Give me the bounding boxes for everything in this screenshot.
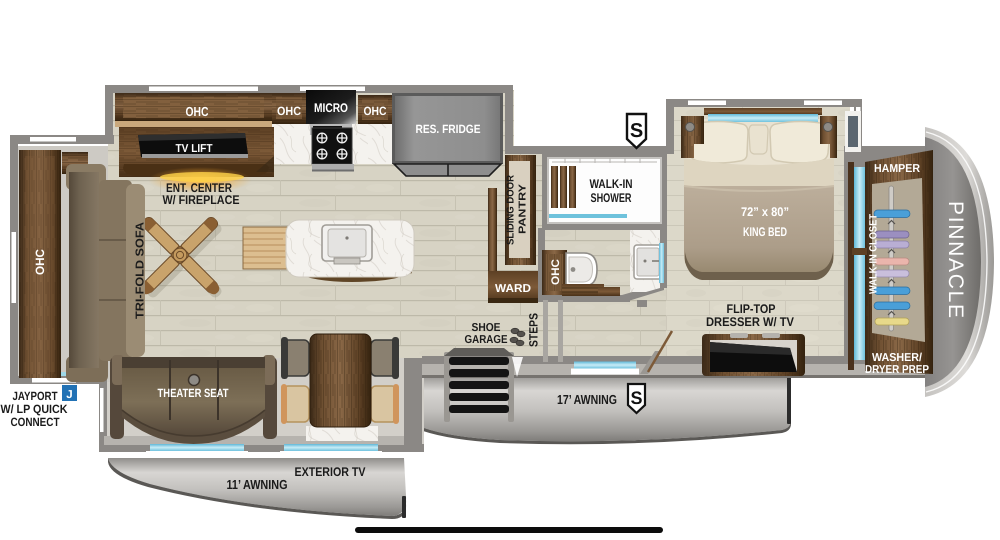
svg-text:RES. FRIDGE: RES. FRIDGE: [416, 122, 481, 136]
svg-text:TRI-FOLD SOFA: TRI-FOLD SOFA: [135, 222, 147, 319]
svg-text:HAMPER: HAMPER: [874, 163, 921, 175]
svg-text:WALK-IN CLOSET: WALK-IN CLOSET: [868, 213, 880, 294]
svg-text:EXTERIOR TV: EXTERIOR TV: [295, 465, 367, 479]
svg-text:KING BED: KING BED: [743, 225, 787, 239]
svg-text:PINNACLE: PINNACLE: [944, 201, 967, 318]
svg-text:OHC: OHC: [186, 104, 209, 119]
svg-text:72” x 80”: 72” x 80”: [741, 205, 789, 219]
svg-text:FLIP-TOP: FLIP-TOP: [727, 302, 776, 316]
svg-text:OHC: OHC: [364, 104, 387, 118]
svg-text:DRESSER W/ TV: DRESSER W/ TV: [706, 315, 795, 329]
svg-text:PANTRY: PANTRY: [518, 184, 529, 234]
svg-text:WALK-IN: WALK-IN: [590, 177, 633, 191]
svg-text:WARD: WARD: [495, 283, 531, 295]
svg-text:WASHER/: WASHER/: [872, 352, 923, 364]
svg-text:DRYER PREP: DRYER PREP: [865, 364, 929, 376]
svg-text:J: J: [66, 389, 72, 401]
svg-text:17’ AWNING: 17’ AWNING: [557, 392, 617, 407]
svg-text:THEATER SEAT: THEATER SEAT: [158, 386, 230, 400]
svg-text:OHC: OHC: [33, 249, 47, 275]
svg-text:SHOE: SHOE: [472, 322, 501, 334]
svg-text:SHOWER: SHOWER: [591, 191, 632, 205]
svg-text:MICRO: MICRO: [314, 101, 348, 115]
svg-text:W/ FIREPLACE: W/ FIREPLACE: [163, 193, 240, 207]
svg-text:OHC: OHC: [277, 104, 301, 118]
svg-text:STEPS: STEPS: [527, 313, 541, 347]
svg-text:OHC: OHC: [550, 259, 562, 285]
svg-text:SLIDING DOOR: SLIDING DOOR: [506, 174, 517, 245]
svg-text:GARAGE: GARAGE: [465, 334, 508, 346]
svg-text:W/ LP QUICK: W/ LP QUICK: [1, 402, 68, 416]
svg-text:TV LIFT: TV LIFT: [176, 143, 213, 155]
svg-text:CONNECT: CONNECT: [11, 415, 61, 429]
svg-text:S: S: [630, 120, 643, 142]
svg-text:S: S: [630, 388, 642, 408]
svg-text:JAYPORT: JAYPORT: [13, 389, 59, 403]
svg-text:11’ AWNING: 11’ AWNING: [227, 477, 288, 492]
